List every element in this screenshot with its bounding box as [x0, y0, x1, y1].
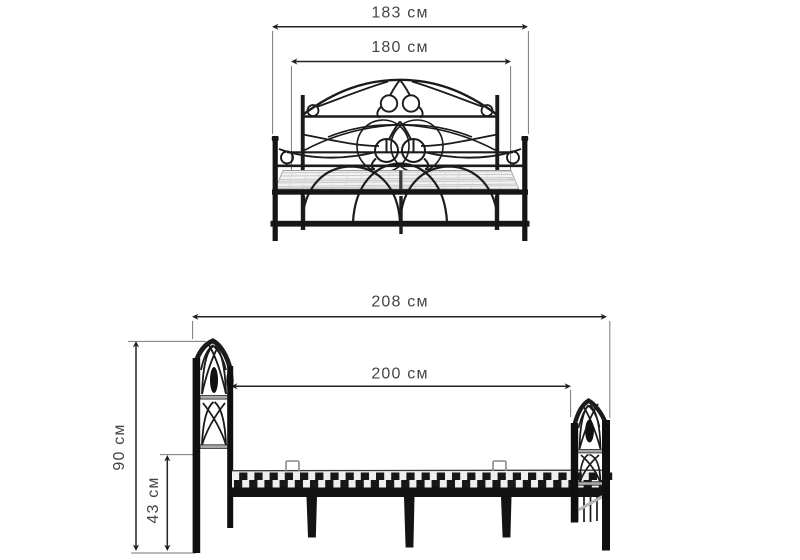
- svg-text:208 см: 208 см: [371, 294, 428, 311]
- svg-text:183 см: 183 см: [371, 5, 428, 22]
- svg-text:90 см: 90 см: [111, 423, 128, 470]
- svg-text:200 см: 200 см: [371, 366, 428, 383]
- svg-text:180 см: 180 см: [371, 39, 428, 56]
- svg-text:43 см: 43 см: [145, 476, 162, 523]
